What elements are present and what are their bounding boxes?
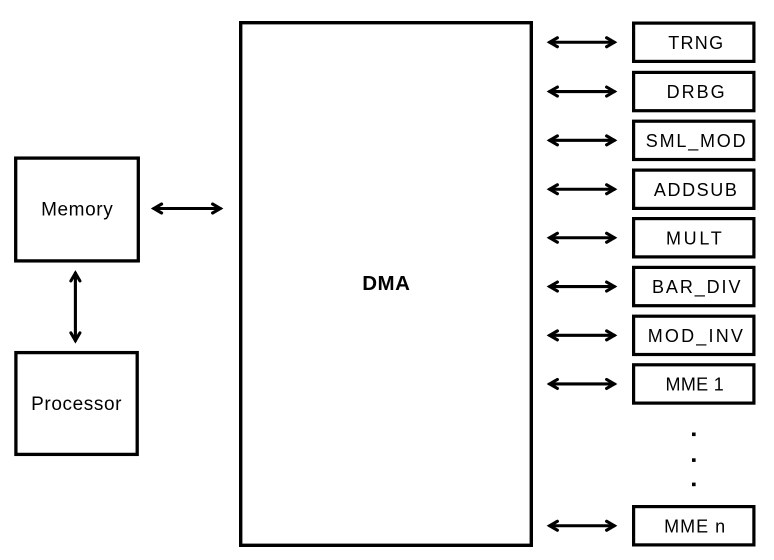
svg-text:MOD_INV: MOD_INV xyxy=(648,326,745,347)
svg-text:BAR_DIV: BAR_DIV xyxy=(652,277,742,298)
svg-text:MME 1: MME 1 xyxy=(666,375,725,395)
svg-text:TRNG: TRNG xyxy=(668,33,724,53)
svg-text:SML_MOD: SML_MOD xyxy=(646,131,748,152)
svg-text:MULT: MULT xyxy=(666,228,724,248)
svg-text:DMA: DMA xyxy=(362,272,410,295)
svg-text:Memory: Memory xyxy=(41,200,113,221)
svg-text:DRBG: DRBG xyxy=(667,82,727,102)
svg-text:ADDSUB: ADDSUB xyxy=(654,180,739,200)
svg-text:MME n: MME n xyxy=(664,516,726,536)
svg-text:Processor: Processor xyxy=(31,394,122,415)
